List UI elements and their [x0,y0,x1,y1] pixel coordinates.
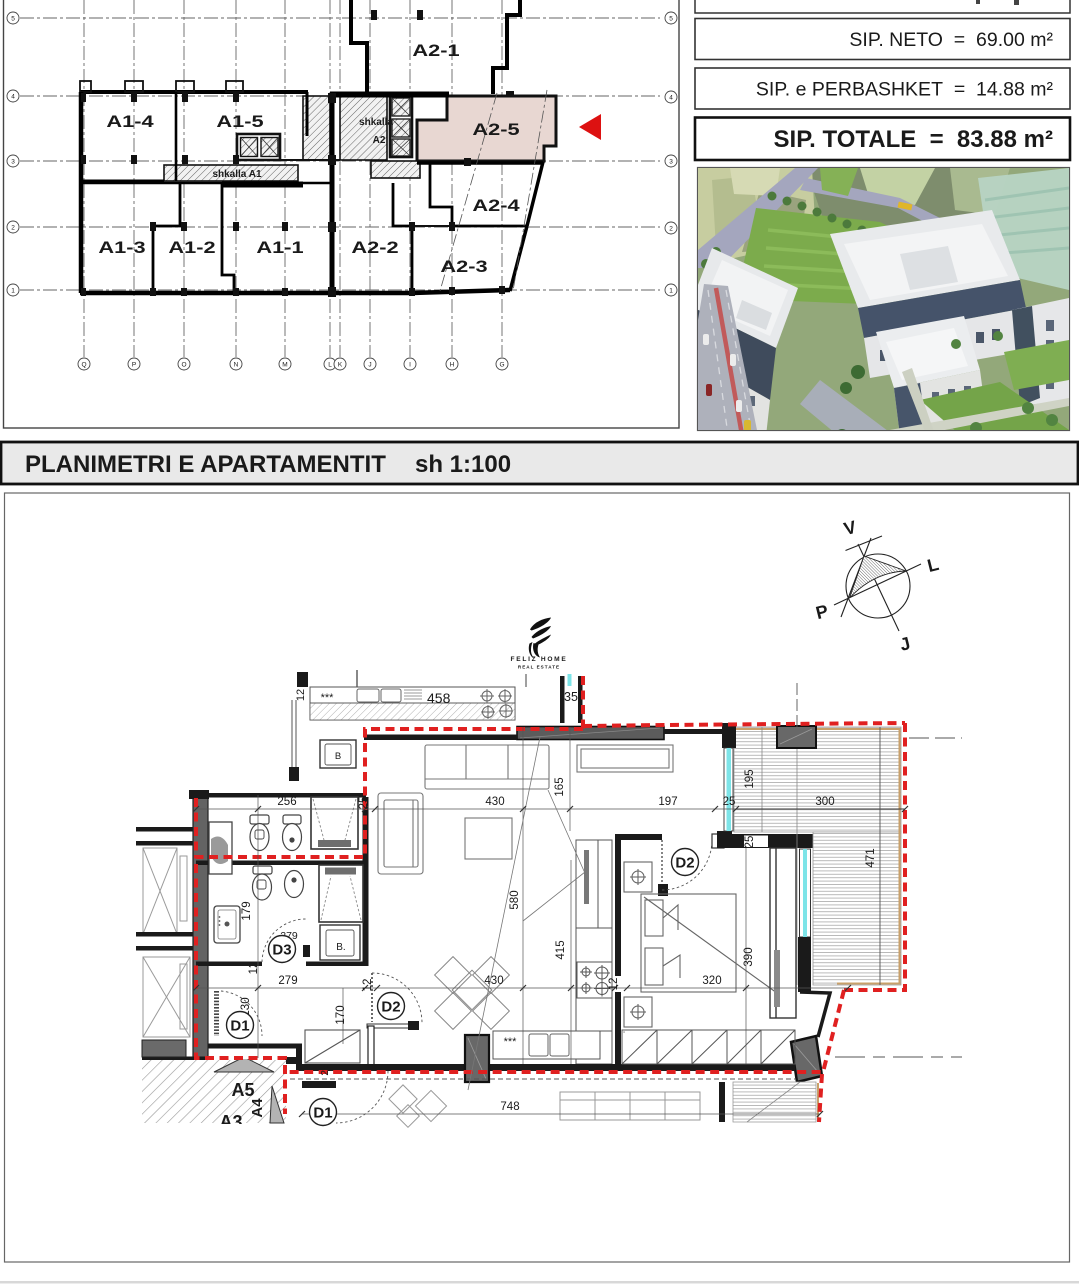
svg-text:748: 748 [500,1101,519,1113]
svg-text:shkalla A1: shkalla A1 [212,169,262,180]
svg-text:A2-5: A2-5 [472,121,519,139]
svg-text:5: 5 [11,16,15,23]
svg-text:2: 2 [669,226,673,233]
svg-text:shkalla: shkalla [359,117,393,128]
svg-text:430: 430 [485,796,504,808]
svg-text:A1-4: A1-4 [106,113,153,131]
svg-text:A2-2: A2-2 [351,239,398,257]
svg-text:SIP. NETO = 69.00 m²: SIP. NETO = 69.00 m² [849,29,1053,51]
svg-text:A1-3: A1-3 [98,239,145,257]
svg-text:A1-2: A1-2 [168,239,215,257]
svg-text:430: 430 [484,975,503,987]
svg-text:25: 25 [723,796,736,808]
svg-text:A2-1: A2-1 [412,42,459,60]
svg-text:SIP. e PERBASHKET = 14.88 m²: SIP. e PERBASHKET = 14.88 m² [756,79,1054,101]
svg-text:SIP. TOTALE = 83.88 m²: SIP. TOTALE = 83.88 m² [774,126,1053,153]
svg-text:A2-4: A2-4 [472,197,519,215]
svg-text:N: N [234,362,239,369]
svg-text:415: 415 [555,940,567,959]
svg-text:A4: A4 [249,1098,266,1118]
svg-text:D2: D2 [381,999,400,1016]
svg-text:D1: D1 [230,1018,249,1035]
svg-text:3: 3 [11,159,15,166]
svg-text:Q: Q [81,362,86,369]
svg-text:471: 471 [865,848,877,867]
svg-text:B.: B. [336,942,345,953]
svg-text:1: 1 [669,288,673,295]
svg-text:197: 197 [658,796,677,808]
svg-text:165: 165 [554,777,566,796]
svg-text:300: 300 [815,796,834,808]
svg-text:FELIZ HOME: FELIZ HOME [511,656,568,663]
svg-text:M: M [282,362,287,369]
svg-text:3: 3 [669,159,673,166]
svg-text:P: P [132,362,136,369]
svg-text:K: K [338,362,343,369]
svg-text:A2-3: A2-3 [440,258,487,276]
svg-text:D3: D3 [272,942,291,959]
svg-text:J: J [368,362,371,369]
svg-text:25: 25 [358,797,370,810]
svg-text:D1: D1 [313,1105,332,1122]
svg-text:1: 1 [11,288,15,295]
svg-text:4: 4 [11,94,15,101]
svg-text:279: 279 [278,975,297,987]
svg-text:580: 580 [509,890,521,909]
svg-text:B: B [335,751,341,762]
svg-text:A1-1: A1-1 [256,239,303,257]
svg-text:H: H [450,362,455,369]
svg-text:390: 390 [743,947,755,966]
svg-text:I: I [409,362,411,369]
svg-text:12: 12 [248,962,260,975]
svg-text:12: 12 [608,978,620,991]
svg-text:G: G [499,362,504,369]
svg-text:12: 12 [295,689,307,701]
svg-text:458: 458 [427,690,451,706]
svg-text:***: *** [504,1036,518,1048]
svg-text:195: 195 [744,769,756,788]
svg-text:25: 25 [744,836,756,849]
svg-text:35: 35 [564,690,578,704]
svg-text:25: 25 [320,1064,331,1076]
svg-text:***: *** [321,692,335,704]
svg-text:REAL ESTATE: REAL ESTATE [518,665,560,670]
svg-text:4: 4 [669,95,673,102]
svg-text:256: 256 [277,796,296,808]
svg-text:O: O [181,362,186,369]
svg-text:12: 12 [362,979,374,992]
svg-text:5: 5 [669,16,673,23]
svg-text:A1-5: A1-5 [216,113,263,131]
svg-text:sh 1:100: sh 1:100 [415,451,511,478]
svg-text:PLANIMETRI E APARTAMENTIT: PLANIMETRI E APARTAMENTIT [25,451,386,478]
svg-text:A5: A5 [231,1080,254,1100]
svg-text:170: 170 [335,1005,347,1024]
svg-text:A2: A2 [373,135,386,146]
svg-text:320: 320 [702,975,721,987]
svg-text:D2: D2 [675,855,694,872]
svg-text:179: 179 [241,901,253,920]
svg-text:L: L [328,362,332,369]
svg-text:2: 2 [11,225,15,232]
